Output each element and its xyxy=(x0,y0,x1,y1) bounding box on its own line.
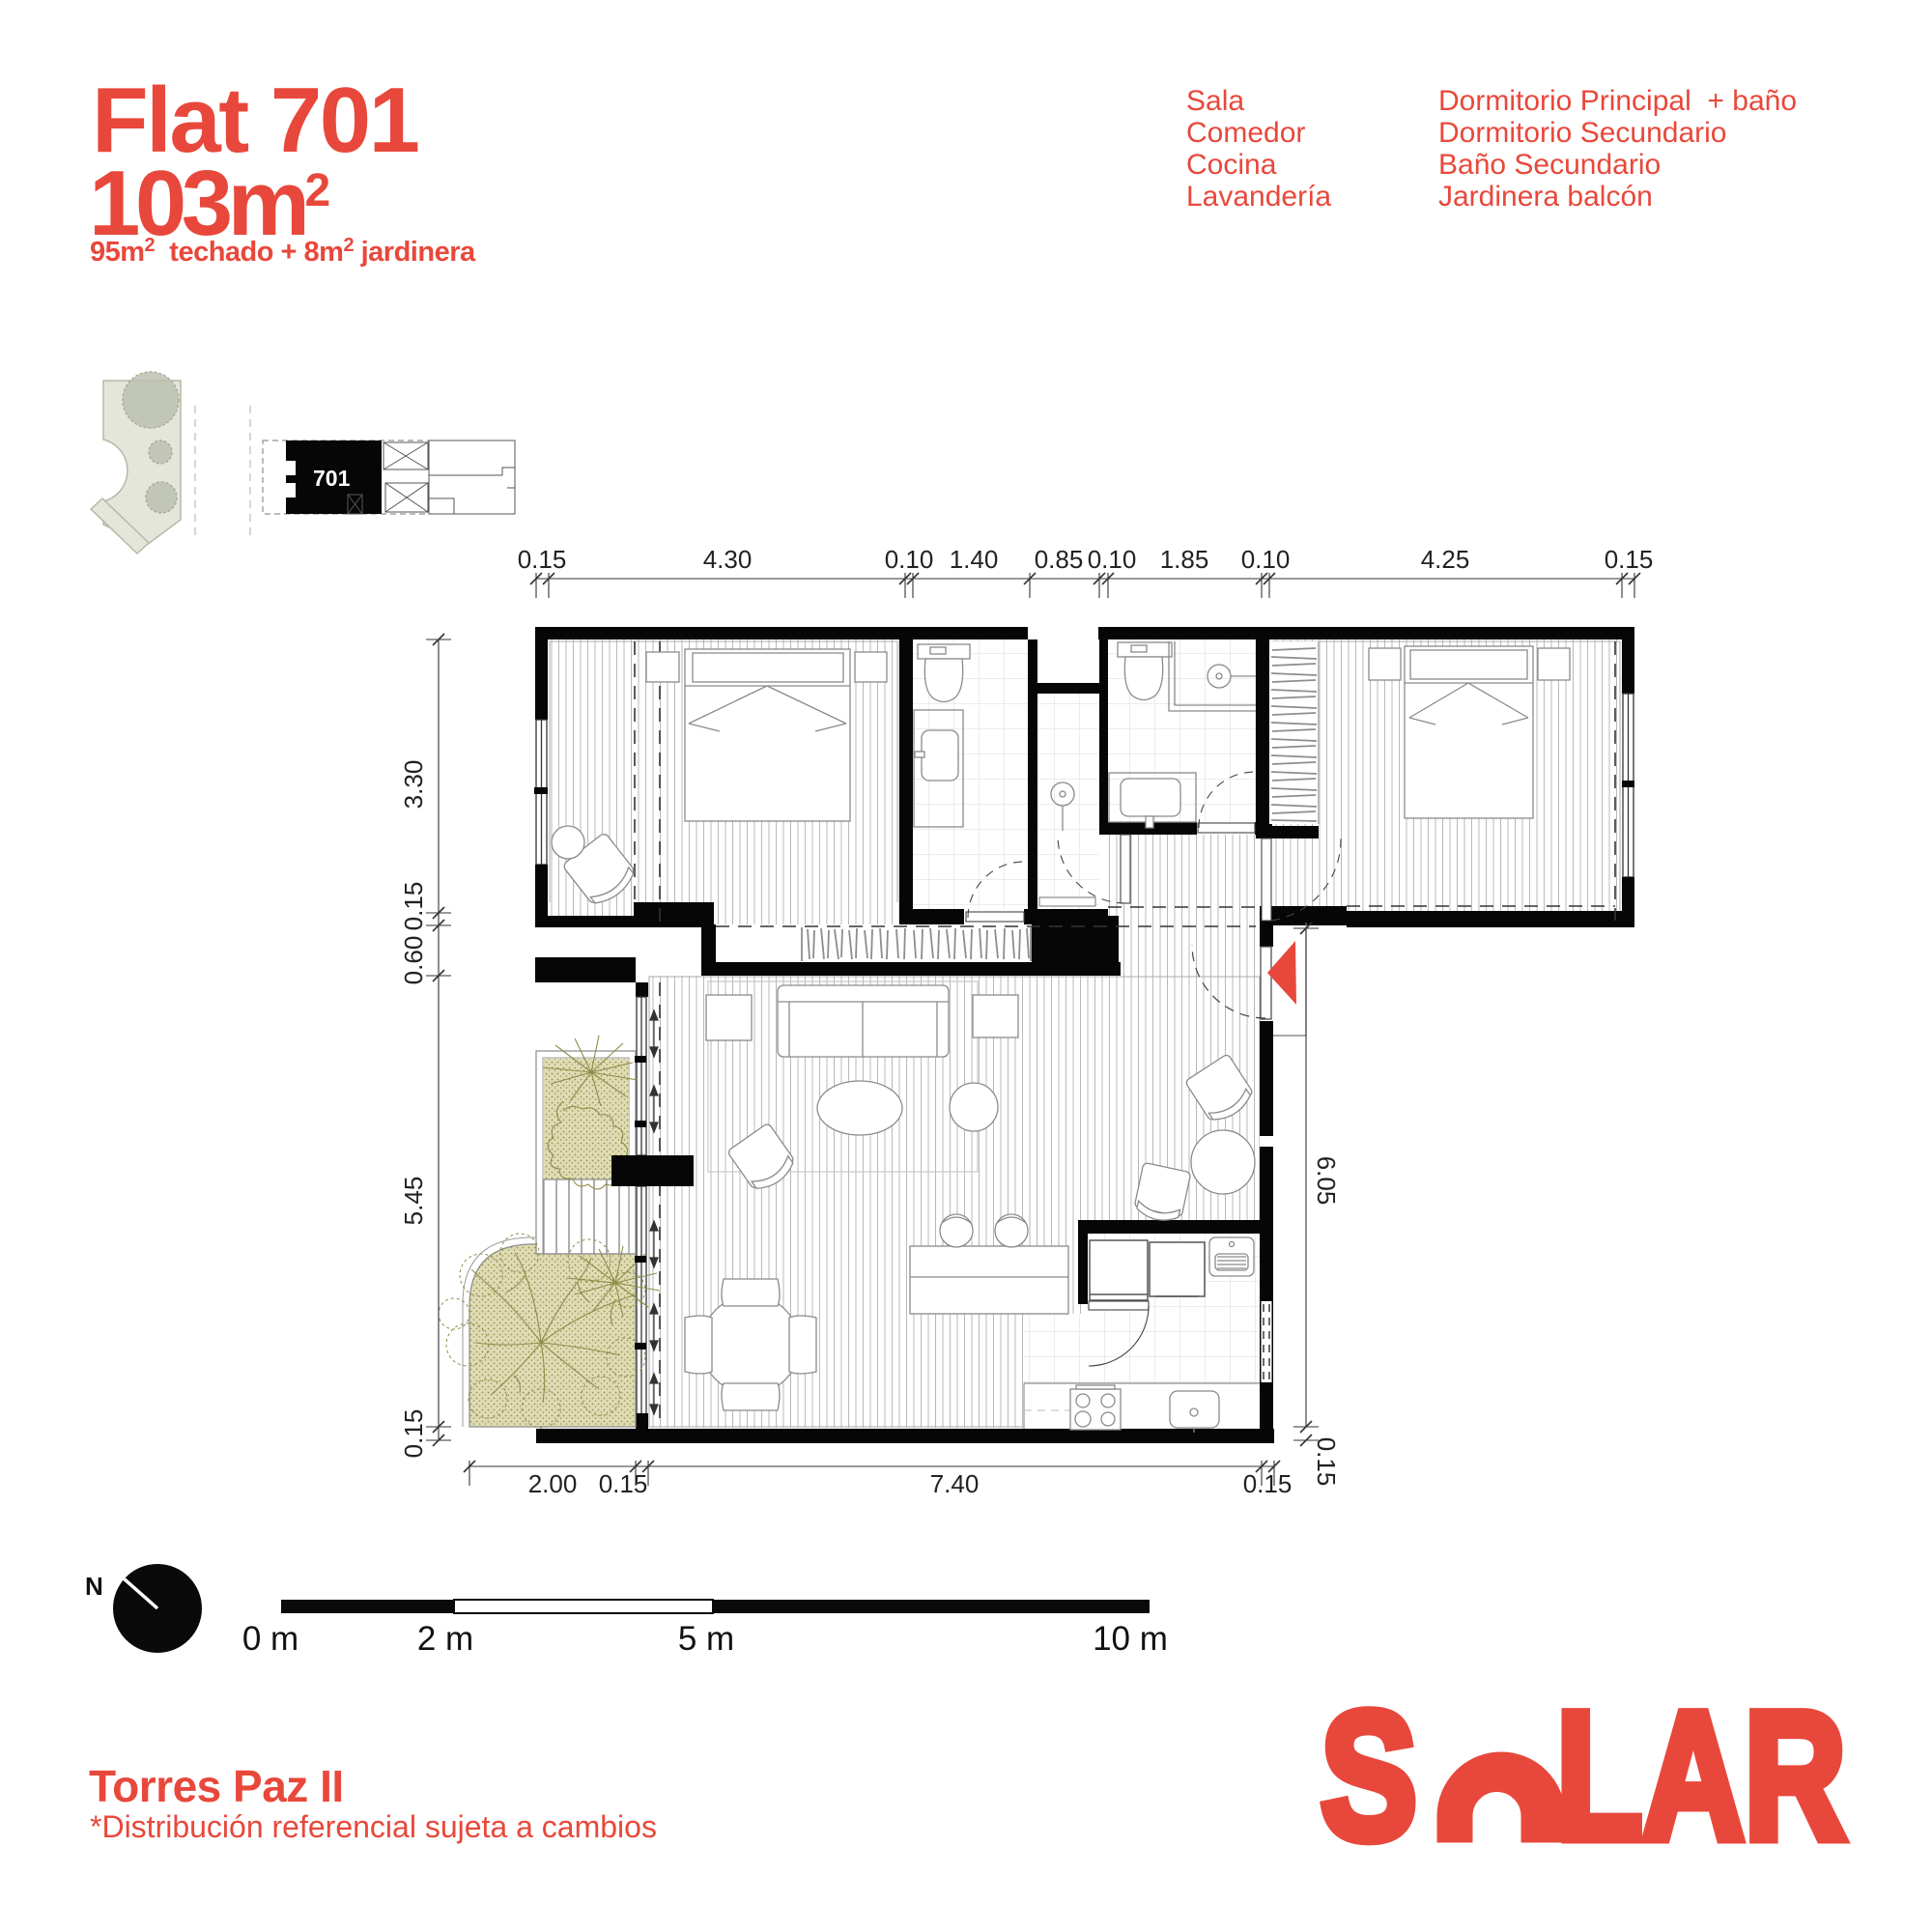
svg-text:2.00: 2.00 xyxy=(528,1469,578,1498)
svg-text:0.60: 0.60 xyxy=(399,936,428,985)
svg-text:1.40: 1.40 xyxy=(950,545,999,574)
svg-text:0.10: 0.10 xyxy=(1241,545,1291,574)
svg-text:0.15: 0.15 xyxy=(399,1409,428,1459)
svg-text:0.15: 0.15 xyxy=(399,882,428,931)
svg-text:0.15: 0.15 xyxy=(599,1469,648,1498)
svg-text:1.85: 1.85 xyxy=(1160,545,1209,574)
svg-text:0.85: 0.85 xyxy=(1035,545,1084,574)
svg-text:7.40: 7.40 xyxy=(930,1469,980,1498)
svg-text:0.15: 0.15 xyxy=(518,545,567,574)
svg-text:3.30: 3.30 xyxy=(399,760,428,810)
svg-text:6.05: 6.05 xyxy=(1312,1156,1341,1206)
svg-text:0.15: 0.15 xyxy=(1243,1469,1293,1498)
svg-text:0.15: 0.15 xyxy=(1605,545,1654,574)
svg-text:4.30: 4.30 xyxy=(703,545,753,574)
svg-text:0.15: 0.15 xyxy=(1312,1437,1341,1487)
svg-text:4.25: 4.25 xyxy=(1421,545,1470,574)
svg-text:5.45: 5.45 xyxy=(399,1177,428,1226)
svg-text:N: N xyxy=(85,1572,103,1601)
svg-text:0.10: 0.10 xyxy=(885,545,934,574)
svg-text:0 m: 0 m xyxy=(242,1620,298,1658)
svg-text:2 m: 2 m xyxy=(417,1620,473,1658)
svg-text:5 m: 5 m xyxy=(678,1620,734,1658)
svg-text:10 m: 10 m xyxy=(1093,1620,1168,1658)
svg-text:S: S xyxy=(1321,1674,1417,1877)
svg-text:LAR: LAR xyxy=(1556,1674,1846,1877)
svg-text:0.10: 0.10 xyxy=(1088,545,1137,574)
svg-text:701: 701 xyxy=(313,466,351,491)
